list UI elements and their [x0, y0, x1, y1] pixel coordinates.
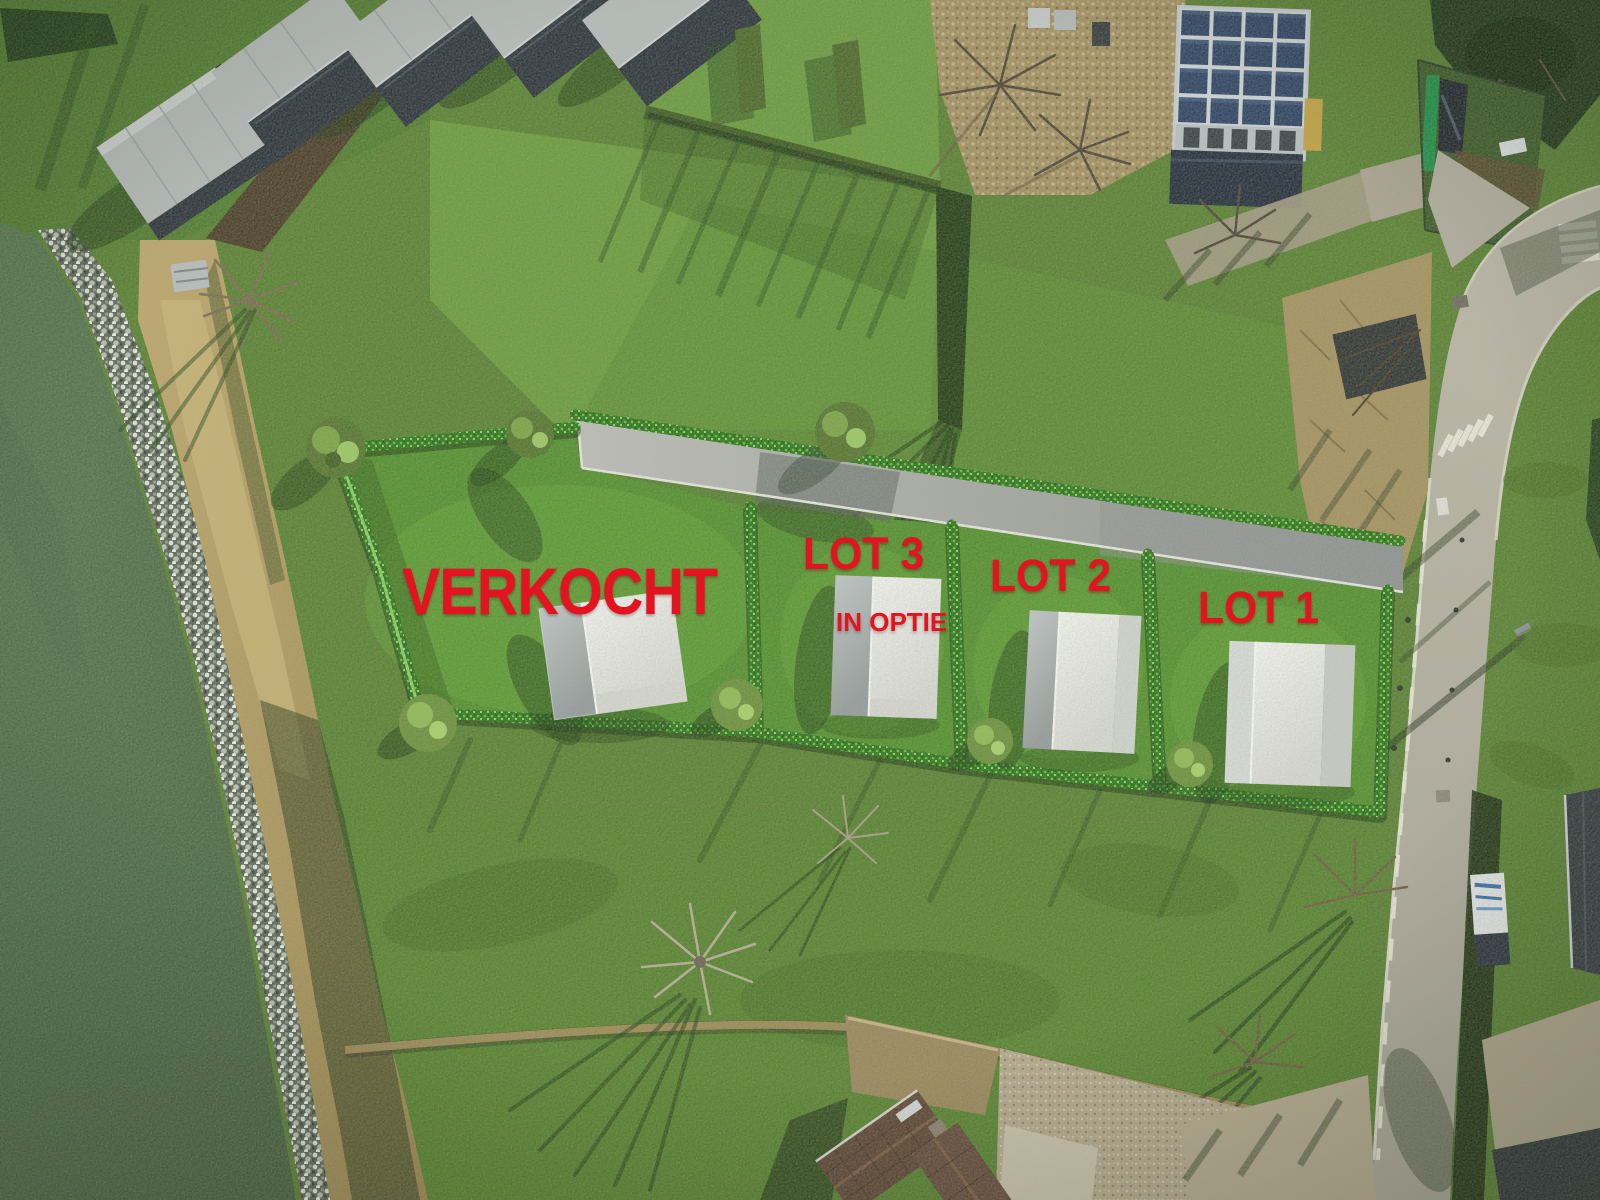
label-lot1: LOT 1 — [1198, 585, 1319, 630]
label-lot3: LOT 3 — [803, 531, 924, 576]
label-lot2: LOT 2 — [990, 553, 1111, 598]
aerial-site-photo: VERKOCHT LOT 3 IN OPTIE LOT 2 LOT 1 — [0, 0, 1600, 1200]
label-lot3-status: IN OPTIE — [836, 609, 947, 635]
vignette — [0, 0, 1600, 1200]
label-verkocht: VERKOCHT — [402, 558, 717, 624]
